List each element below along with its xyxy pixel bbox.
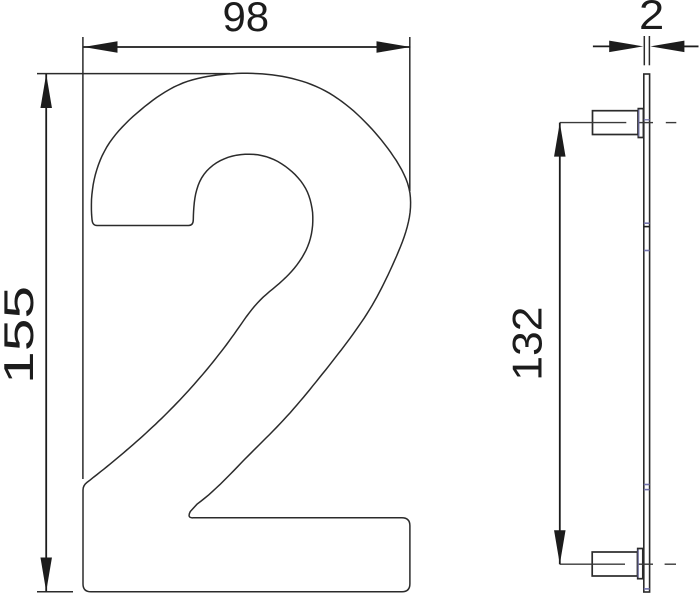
svg-text:155: 155 xyxy=(0,286,42,384)
svg-text:98: 98 xyxy=(222,0,269,40)
svg-text:132: 132 xyxy=(504,307,551,381)
svg-text:2: 2 xyxy=(639,0,664,38)
